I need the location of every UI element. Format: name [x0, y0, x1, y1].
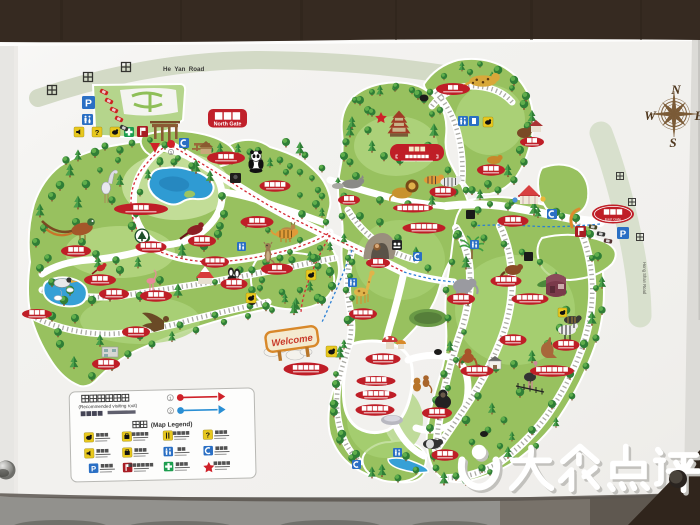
- svg-text:N: N: [670, 82, 681, 97]
- svg-text:W: W: [644, 108, 657, 123]
- svg-text:S: S: [669, 135, 676, 150]
- svg-text:?: ?: [95, 128, 100, 137]
- svg-text:East Gate: East Gate: [605, 218, 621, 222]
- svg-text:(Map Legend): (Map Legend): [151, 421, 193, 429]
- svg-text:P: P: [91, 464, 96, 473]
- svg-text:P: P: [620, 229, 627, 240]
- svg-text:?: ?: [206, 431, 211, 439]
- svg-text:Hong Shan Road: Hong Shan Road: [642, 262, 647, 295]
- svg-text:He Yan Road: He Yan Road: [163, 66, 204, 73]
- svg-text:E: E: [694, 108, 700, 123]
- svg-text:P: P: [85, 99, 92, 110]
- svg-text:North Gate: North Gate: [214, 122, 242, 128]
